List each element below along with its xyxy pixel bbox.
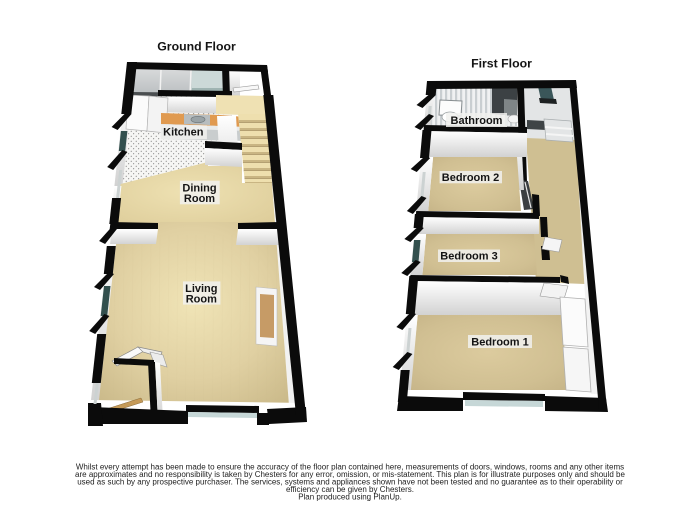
svg-text:First Floor: First Floor <box>471 56 532 70</box>
svg-text:Bedroom 3: Bedroom 3 <box>440 251 497 263</box>
svg-text:Room: Room <box>186 294 217 306</box>
svg-text:Ground Floor: Ground Floor <box>157 40 236 54</box>
svg-text:Plan produced using PlanUp.: Plan produced using PlanUp. <box>298 493 402 502</box>
svg-text:Bedroom 1: Bedroom 1 <box>471 336 528 348</box>
svg-text:Room: Room <box>184 193 215 205</box>
svg-text:Bathroom: Bathroom <box>451 115 503 127</box>
svg-text:Bedroom 2: Bedroom 2 <box>442 172 499 184</box>
svg-text:Kitchen: Kitchen <box>163 126 204 138</box>
